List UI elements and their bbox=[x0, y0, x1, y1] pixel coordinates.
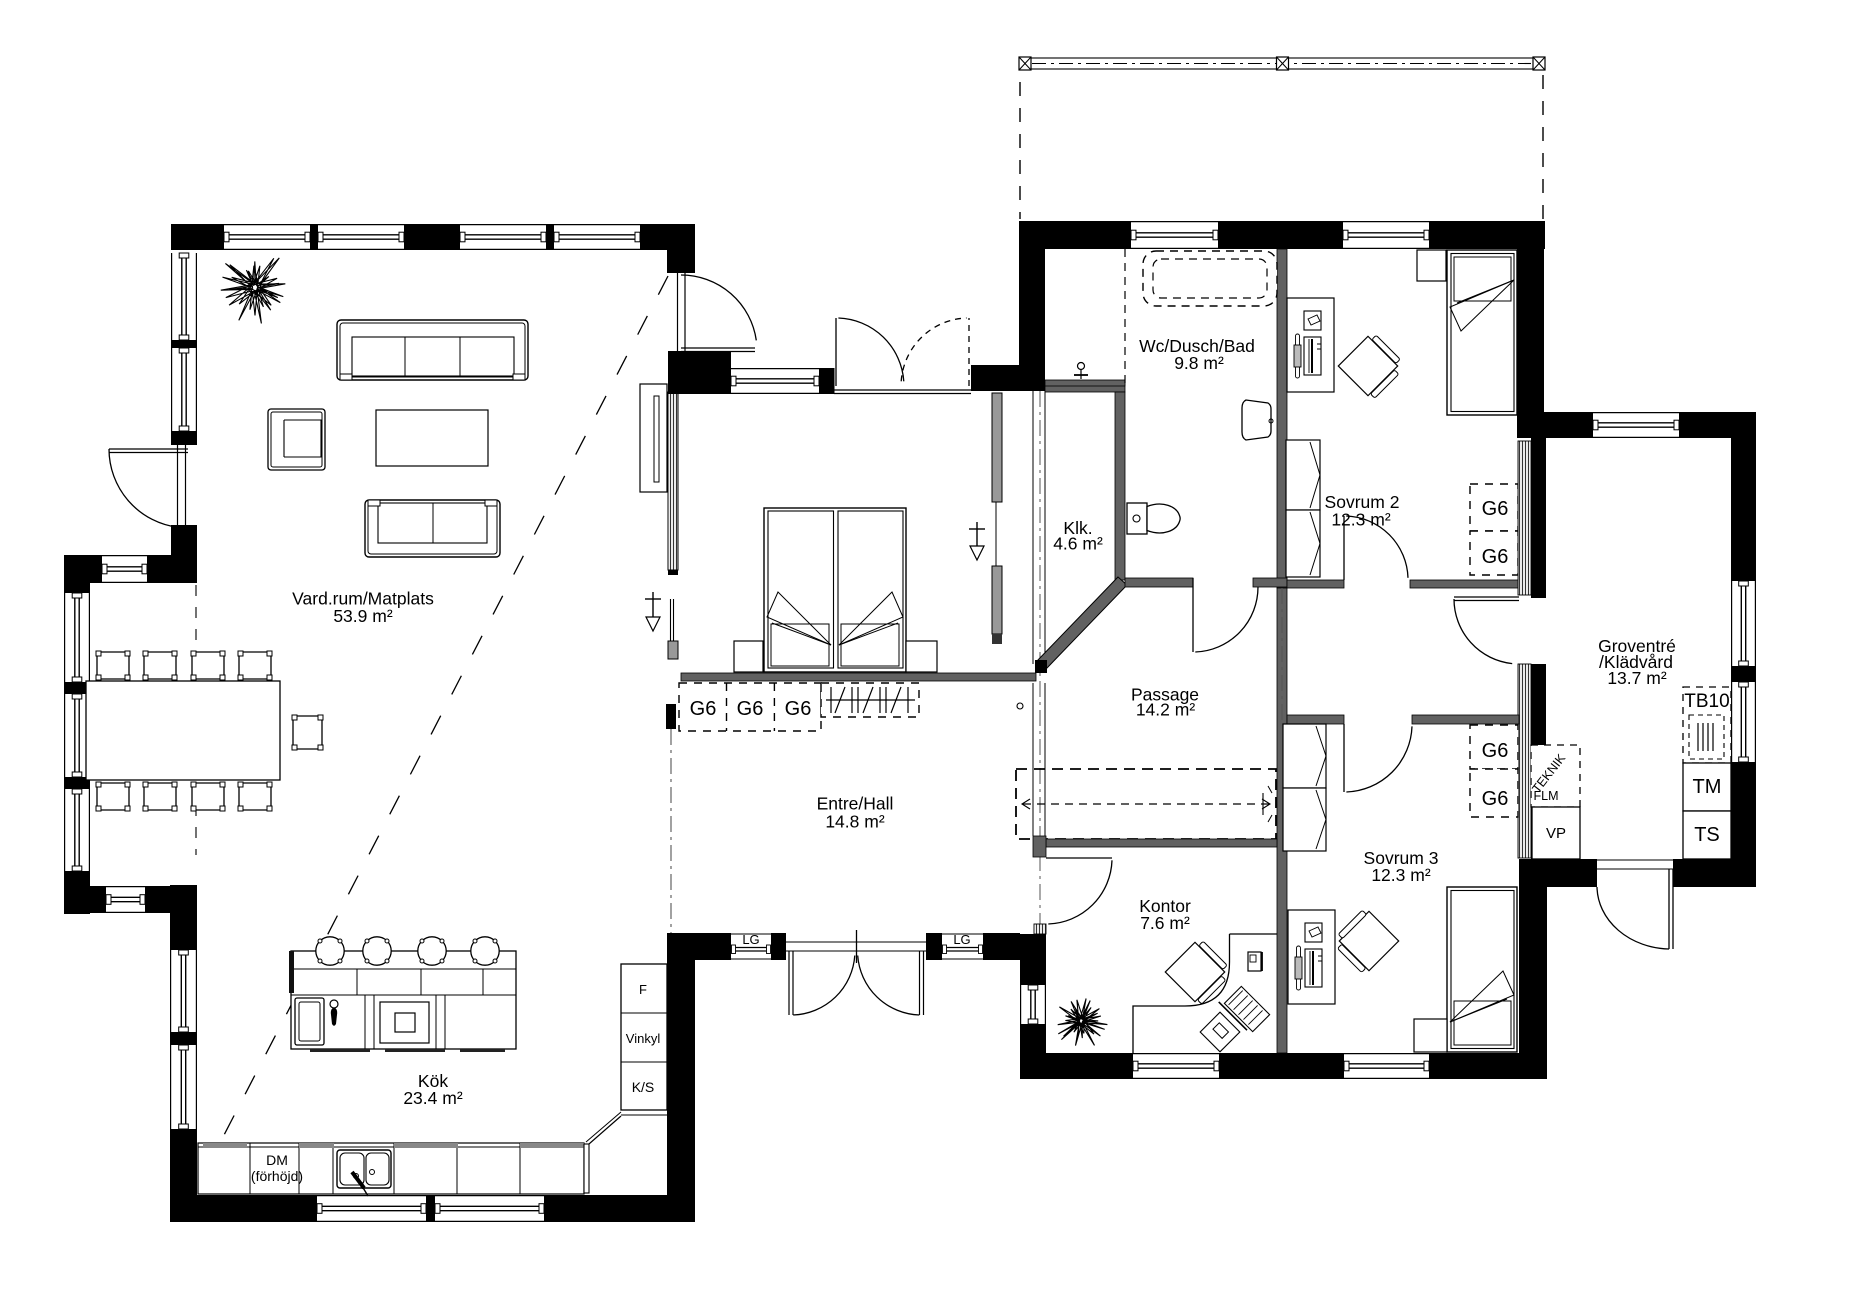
svg-text:4.6 m²: 4.6 m² bbox=[1053, 534, 1103, 554]
svg-text:Vinkyl: Vinkyl bbox=[626, 1031, 661, 1046]
svg-text:14.8 m²: 14.8 m² bbox=[825, 812, 884, 832]
svg-text:G6: G6 bbox=[1482, 498, 1509, 520]
svg-text:F: F bbox=[639, 982, 647, 997]
svg-text:23.4 m²: 23.4 m² bbox=[403, 1088, 462, 1108]
svg-text:G6: G6 bbox=[1482, 740, 1509, 762]
svg-text:(förhöjd): (förhöjd) bbox=[251, 1168, 303, 1184]
svg-text:Entre/Hall: Entre/Hall bbox=[817, 794, 894, 814]
svg-text:G6: G6 bbox=[785, 698, 812, 720]
svg-text:TM: TM bbox=[1693, 776, 1722, 798]
svg-text:G6: G6 bbox=[1482, 788, 1509, 810]
svg-text:DM: DM bbox=[266, 1152, 288, 1168]
svg-text:53.9 m²: 53.9 m² bbox=[333, 606, 392, 626]
svg-text:VP: VP bbox=[1546, 825, 1566, 842]
svg-text:14.2 m²: 14.2 m² bbox=[1136, 700, 1195, 720]
svg-text:G6: G6 bbox=[690, 698, 717, 720]
svg-text:LG: LG bbox=[742, 932, 759, 947]
svg-text:9.8 m²: 9.8 m² bbox=[1174, 353, 1224, 373]
svg-text:G6: G6 bbox=[1482, 546, 1509, 568]
svg-text:FLM: FLM bbox=[1534, 789, 1559, 803]
svg-text:K/S: K/S bbox=[632, 1079, 655, 1095]
svg-text:TS: TS bbox=[1694, 824, 1720, 846]
svg-text:G6: G6 bbox=[737, 698, 764, 720]
svg-text:12.3 m²: 12.3 m² bbox=[1331, 510, 1390, 530]
svg-text:7.6 m²: 7.6 m² bbox=[1140, 913, 1190, 933]
svg-text:12.3 m²: 12.3 m² bbox=[1371, 865, 1430, 885]
svg-text:TB10: TB10 bbox=[1684, 691, 1729, 712]
svg-text:LG: LG bbox=[953, 932, 970, 947]
svg-text:13.7 m²: 13.7 m² bbox=[1607, 668, 1666, 688]
